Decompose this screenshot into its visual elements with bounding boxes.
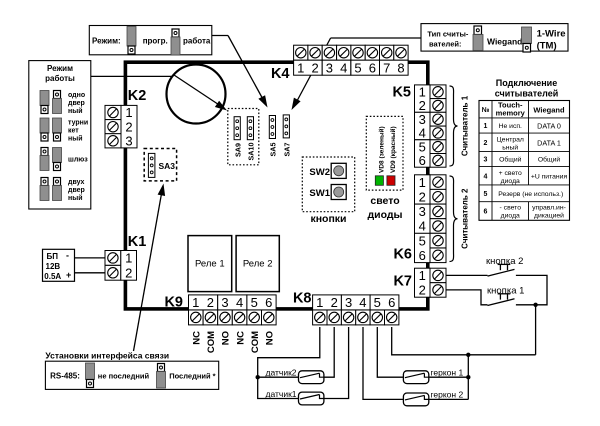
svg-text:K7: K7 <box>393 274 412 290</box>
svg-text:3: 3 <box>326 60 333 75</box>
svg-text:Резерв (не использ.): Резерв (не использ.) <box>498 191 563 198</box>
svg-text:- свето: - свето <box>500 205 522 212</box>
svg-text:2: 2 <box>419 283 426 298</box>
svg-text:6: 6 <box>369 60 376 75</box>
svg-text:3: 3 <box>345 295 352 310</box>
svg-text:COM: COM <box>250 331 261 353</box>
svg-text:1: 1 <box>297 60 304 75</box>
svg-text:SW1: SW1 <box>309 188 330 199</box>
svg-text:1: 1 <box>419 175 426 190</box>
svg-text:6: 6 <box>265 295 272 310</box>
svg-text:3: 3 <box>419 204 426 219</box>
svg-text:2: 2 <box>125 119 132 134</box>
svg-text:5: 5 <box>419 139 426 154</box>
svg-text:геркон 2: геркон 2 <box>431 390 464 400</box>
svg-text:Реле 2: Реле 2 <box>243 259 273 270</box>
svg-text:(ТМ): (ТМ) <box>537 41 557 52</box>
svg-text:K9: K9 <box>164 295 183 311</box>
svg-text:NO: NO <box>221 331 232 345</box>
svg-text:12В: 12В <box>46 262 61 271</box>
svg-text:RS-485:: RS-485: <box>50 371 80 380</box>
svg-text:4: 4 <box>419 219 426 234</box>
svg-text:SA3: SA3 <box>159 161 176 171</box>
svg-text:двер: двер <box>68 187 85 194</box>
svg-text:DATA 0: DATA 0 <box>537 122 561 131</box>
svg-text:SA5: SA5 <box>269 143 278 157</box>
svg-text:2: 2 <box>484 140 488 147</box>
svg-text:7: 7 <box>383 60 390 75</box>
svg-text:ный: ный <box>68 194 83 202</box>
svg-text:Централ: Централ <box>497 137 524 144</box>
svg-text:3: 3 <box>221 295 228 310</box>
svg-text:кнопки: кнопки <box>310 213 346 225</box>
svg-text:NC: NC <box>192 331 203 345</box>
svg-text:Считыватель 1: Считыватель 1 <box>461 95 470 156</box>
svg-text:Тип считы-: Тип считы- <box>427 30 469 39</box>
svg-text:двер: двер <box>68 100 85 107</box>
svg-text:1: 1 <box>419 268 426 283</box>
svg-text:VD9 (красный): VD9 (красный) <box>389 126 397 173</box>
svg-text:1: 1 <box>192 295 199 310</box>
svg-text:диода: диода <box>501 178 520 185</box>
svg-text:БП: БП <box>47 252 59 261</box>
svg-text:K6: K6 <box>393 247 412 263</box>
svg-text:4: 4 <box>236 295 243 310</box>
svg-text:Общий: Общий <box>499 156 522 164</box>
svg-text:Последний *: Последний * <box>169 371 215 380</box>
svg-text:6: 6 <box>484 209 488 216</box>
svg-text:K2: K2 <box>128 88 147 104</box>
svg-text:4: 4 <box>484 174 488 181</box>
svg-text:датчик1: датчик1 <box>266 389 297 399</box>
svg-text:датчик2: датчик2 <box>266 368 297 378</box>
svg-text:Подключение: Подключение <box>496 78 557 88</box>
svg-text:диоды: диоды <box>367 209 402 221</box>
svg-text:Режим: Режим <box>47 64 73 73</box>
svg-text:Не исп.: Не исп. <box>499 123 522 130</box>
svg-text:5: 5 <box>484 191 488 198</box>
svg-text:работы: работы <box>45 74 75 83</box>
svg-text:2: 2 <box>125 266 132 281</box>
svg-text:Режим:: Режим: <box>92 37 121 46</box>
svg-text:3: 3 <box>484 157 488 164</box>
svg-text:геркон 1: геркон 1 <box>431 368 464 378</box>
svg-text:3: 3 <box>125 134 132 149</box>
svg-text:-: - <box>66 250 69 260</box>
svg-text:5: 5 <box>251 295 258 310</box>
svg-text:COM: COM <box>206 331 217 353</box>
svg-text:+: + <box>66 270 71 280</box>
svg-text:2: 2 <box>207 295 214 310</box>
svg-text:кнопка 2: кнопка 2 <box>486 256 523 267</box>
svg-text:6: 6 <box>419 153 426 168</box>
svg-text:Считыватель 2: Считыватель 2 <box>461 188 470 249</box>
svg-text:5: 5 <box>374 295 381 310</box>
svg-text:кет: кет <box>68 128 79 135</box>
svg-text:диода: диода <box>501 213 520 220</box>
svg-text:K4: K4 <box>271 66 290 82</box>
svg-text:1: 1 <box>316 295 323 310</box>
svg-text:+ свето: + свето <box>499 170 522 177</box>
svg-text:шлюз: шлюз <box>68 157 88 164</box>
svg-text:1: 1 <box>125 105 132 120</box>
svg-text:K5: K5 <box>392 85 411 101</box>
svg-text:K8: K8 <box>293 291 312 307</box>
svg-text:ный: ный <box>68 135 83 143</box>
svg-text:считывателей: считывателей <box>495 89 559 99</box>
svg-text:DATA 1: DATA 1 <box>537 139 561 148</box>
svg-text:2: 2 <box>311 60 318 75</box>
svg-text:дикацией: дикацией <box>534 212 564 220</box>
svg-text:Общий: Общий <box>538 156 561 164</box>
svg-text:одно: одно <box>68 92 85 99</box>
svg-text:NO: NO <box>265 331 276 345</box>
svg-text:1-Wire: 1-Wire <box>537 29 566 40</box>
svg-text:№: № <box>482 106 490 114</box>
svg-text:Wiegand: Wiegand <box>487 37 522 47</box>
svg-text:1: 1 <box>484 123 488 130</box>
svg-text:ьный: ьный <box>502 144 518 152</box>
svg-text:K1: K1 <box>128 234 147 250</box>
svg-text:кнопка 1: кнопка 1 <box>487 286 524 297</box>
svg-text:NC: NC <box>235 331 246 345</box>
svg-text:турни: турни <box>68 120 88 127</box>
svg-text:ный: ный <box>68 107 83 115</box>
svg-text:memory: memory <box>496 109 526 118</box>
svg-text:SA9: SA9 <box>233 143 242 157</box>
svg-text:Wiegand: Wiegand <box>533 106 565 115</box>
svg-text:5: 5 <box>419 233 426 248</box>
svg-text:двух: двух <box>68 179 85 186</box>
svg-text:SW2: SW2 <box>309 167 330 178</box>
svg-text:6: 6 <box>419 248 426 263</box>
svg-text:VD8 (зеленый): VD8 (зеленый) <box>378 126 386 173</box>
svg-text:SA7: SA7 <box>283 143 292 157</box>
svg-text:5: 5 <box>354 60 361 75</box>
svg-text:свето: свето <box>370 195 399 207</box>
svg-text:0.5А: 0.5А <box>44 272 61 281</box>
svg-text:1: 1 <box>125 251 132 266</box>
svg-text:4: 4 <box>340 60 347 75</box>
svg-text:SA10: SA10 <box>247 143 256 161</box>
svg-text:2: 2 <box>331 295 338 310</box>
svg-text:4: 4 <box>359 295 366 310</box>
svg-text:6: 6 <box>388 295 395 310</box>
svg-text:+U питания: +U питания <box>531 174 568 181</box>
svg-text:работа: работа <box>183 37 211 46</box>
svg-text:8: 8 <box>397 60 404 75</box>
svg-text:не последний: не последний <box>98 371 150 380</box>
svg-text:2: 2 <box>419 189 426 204</box>
svg-text:Установки интерфейса связи: Установки интерфейса связи <box>45 351 169 361</box>
svg-text:Реле 1: Реле 1 <box>195 259 225 270</box>
svg-text:вателей:: вателей: <box>429 40 461 49</box>
svg-text:прогр.: прогр. <box>143 37 168 46</box>
svg-text:управл.ин-: управл.ин- <box>532 205 566 212</box>
